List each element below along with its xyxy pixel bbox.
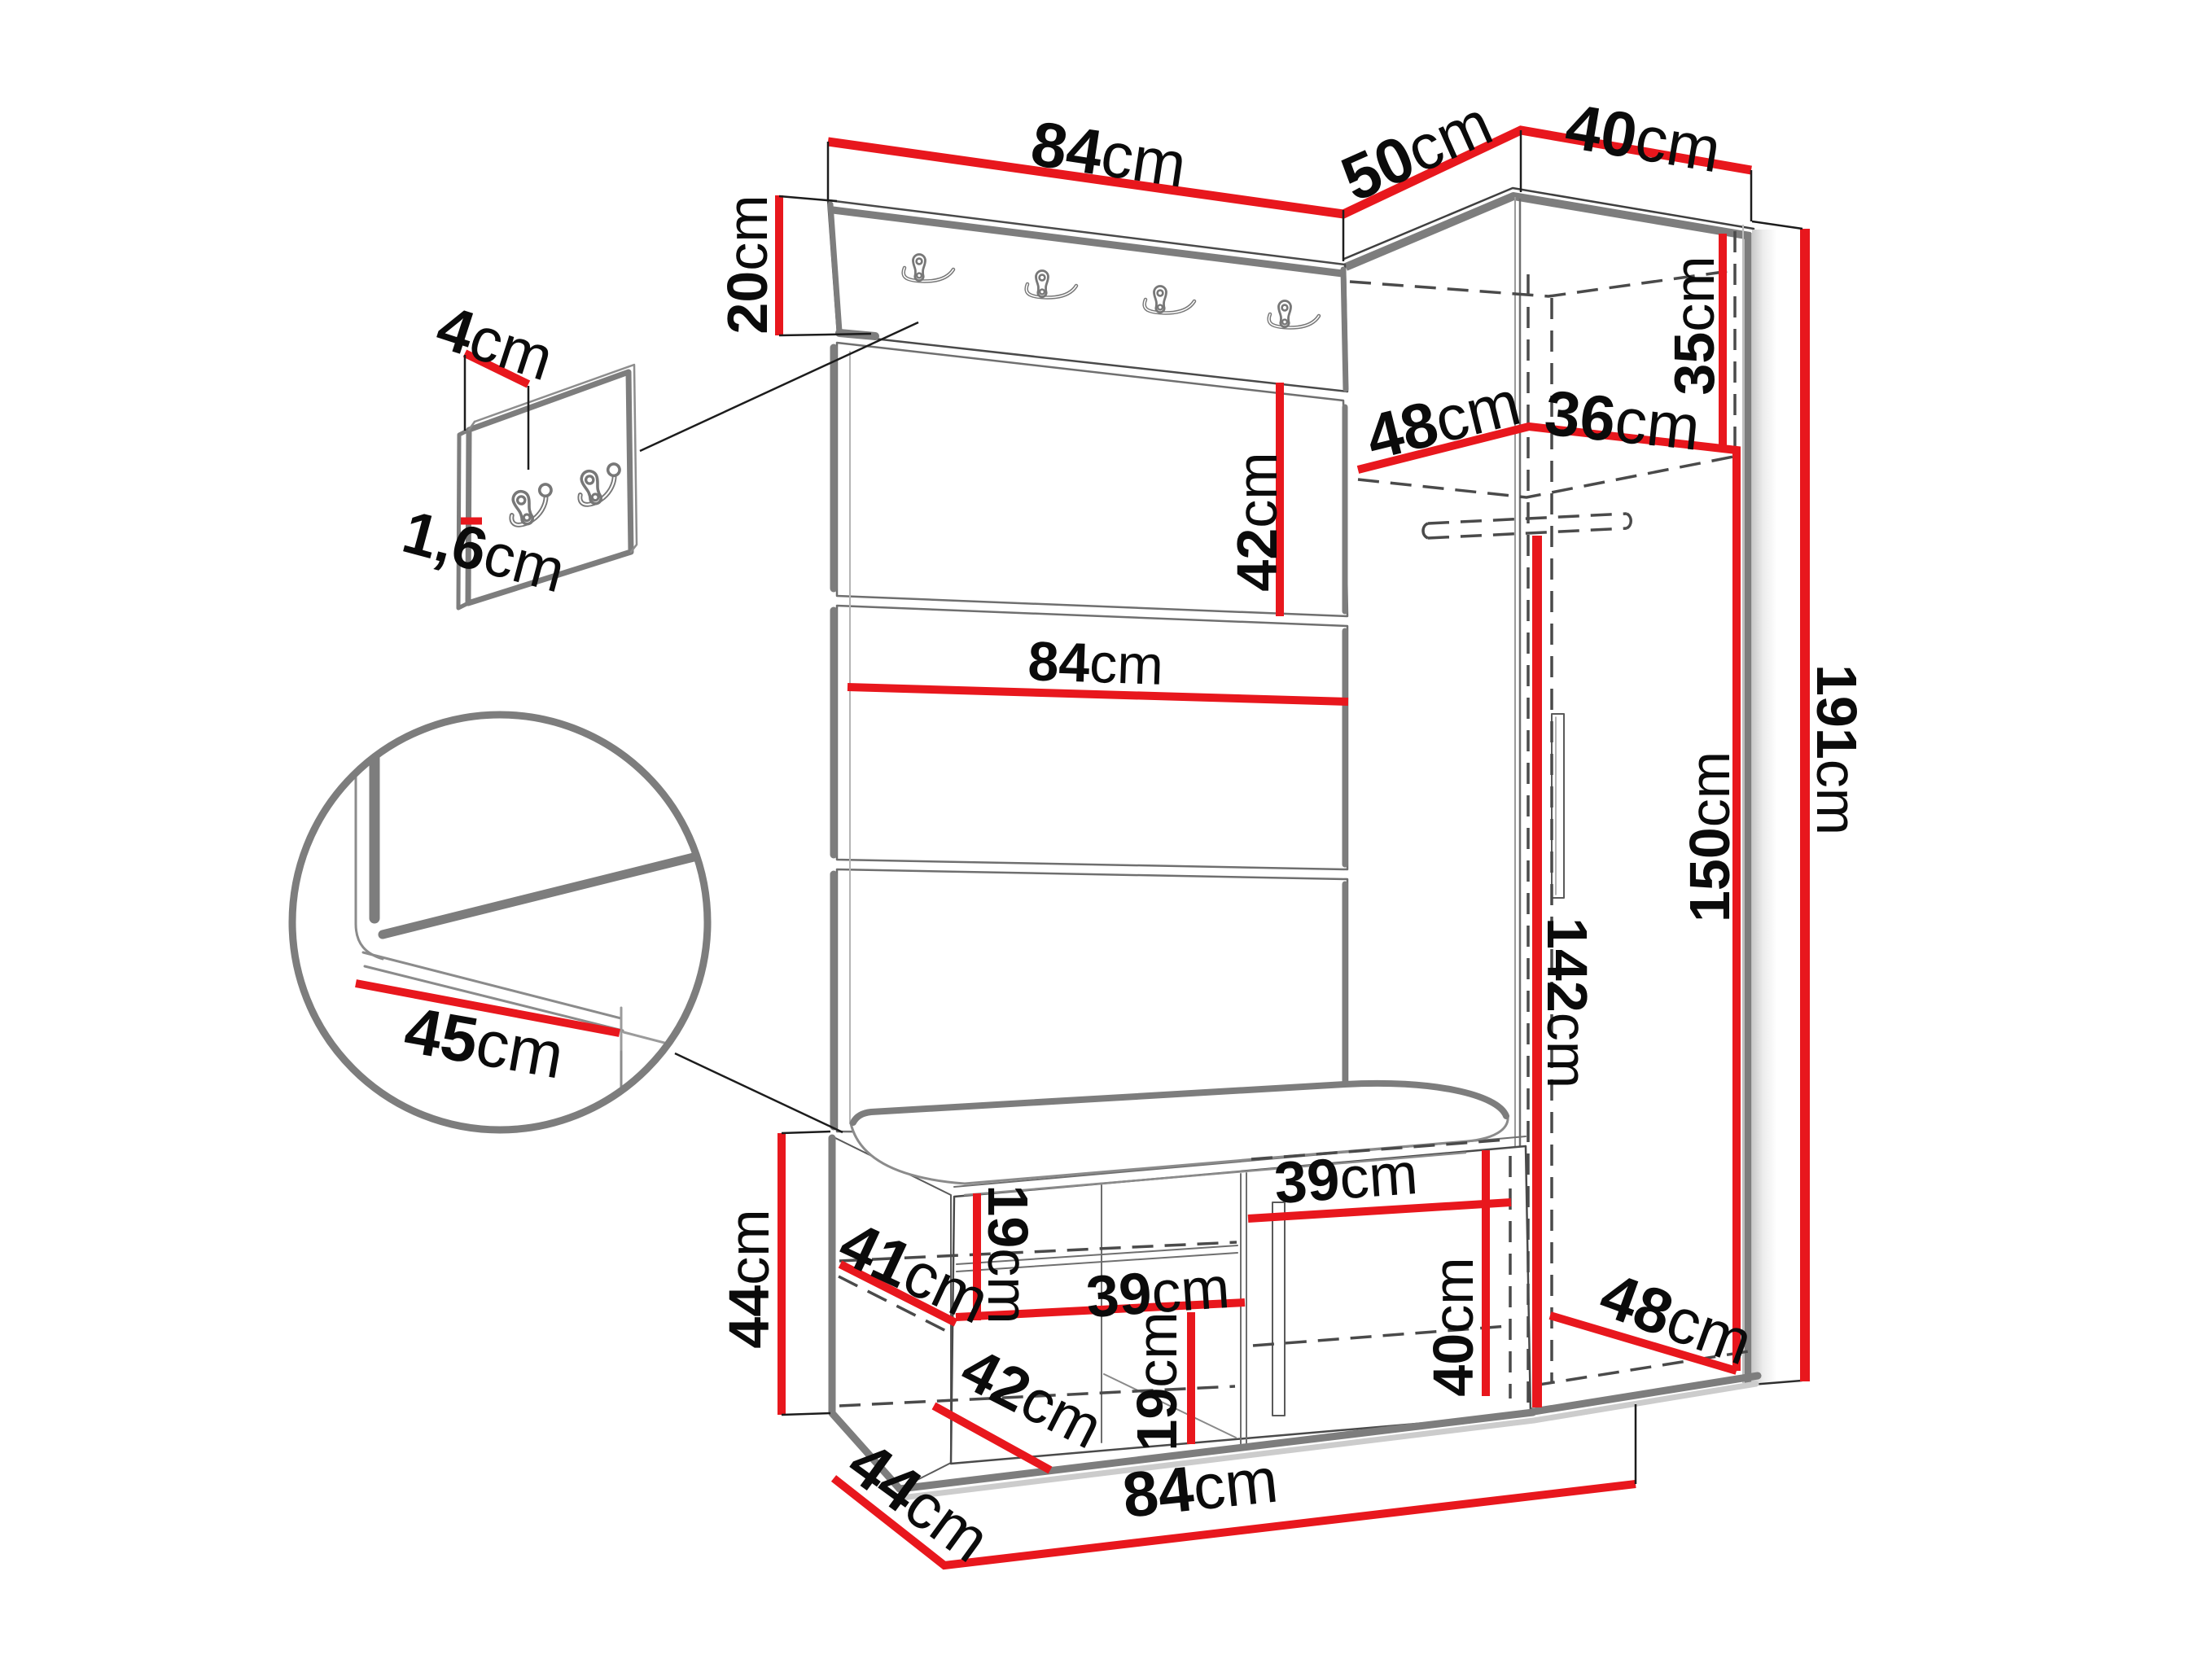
- svg-text:44cm: 44cm: [717, 1209, 781, 1348]
- svg-text:20cm: 20cm: [716, 195, 779, 334]
- svg-text:40cm: 40cm: [1421, 1257, 1485, 1396]
- svg-text:84cm: 84cm: [1027, 630, 1164, 697]
- svg-text:191cm: 191cm: [1805, 664, 1868, 835]
- svg-text:19cm: 19cm: [1125, 1311, 1189, 1451]
- svg-text:39cm: 39cm: [1272, 1141, 1420, 1216]
- svg-text:142cm: 142cm: [1535, 917, 1599, 1088]
- svg-text:35cm: 35cm: [1662, 256, 1726, 395]
- svg-text:150cm: 150cm: [1678, 751, 1741, 922]
- svg-text:42cm: 42cm: [1225, 452, 1289, 591]
